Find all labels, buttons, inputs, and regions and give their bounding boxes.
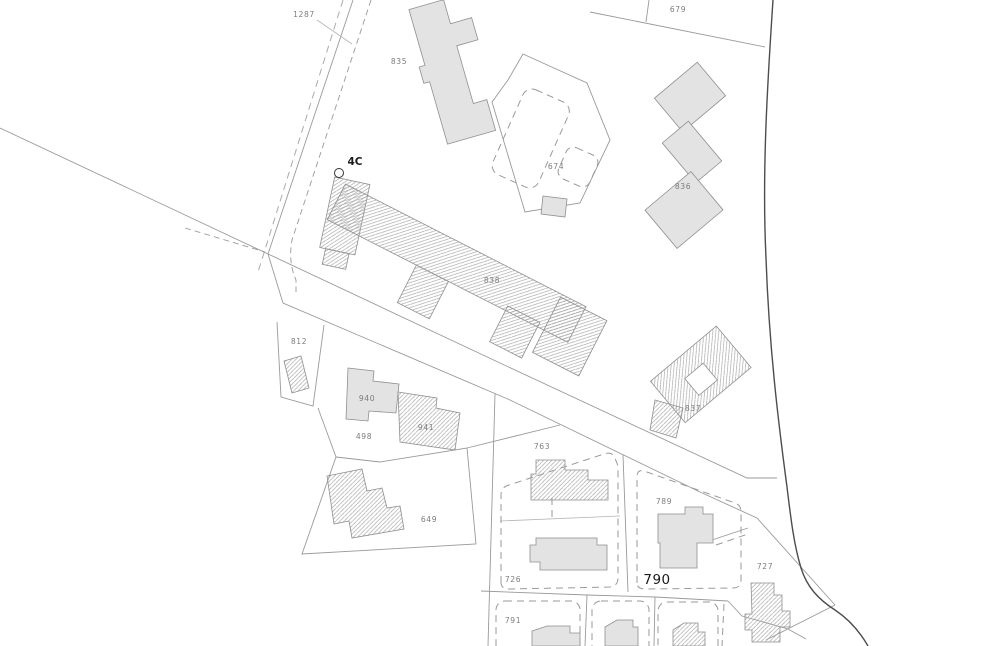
label-address-4c: 4C [347,156,362,168]
dashed-vertical-727 [722,604,724,646]
label-building-837: 837 [685,404,701,413]
building-837 [650,326,751,438]
boundary-bottom-row-top [481,591,728,601]
bottom-row-divider-2 [654,597,655,646]
label-parcel-763: 763 [534,442,550,451]
label-1287-leader-line [317,20,352,44]
building-789 [658,507,713,568]
label-parcel-674: 674 [548,162,564,171]
building-835 [403,0,503,146]
cadastral-map-canvas[interactable]: 1287 835 679 674 836 838 812 940 941 498… [0,0,1005,646]
bottom-row-divider-1 [585,595,587,646]
building-727 [745,583,790,642]
building-726 [530,538,607,570]
label-parcel-791: 791 [505,616,521,625]
label-parcel-498: 498 [356,432,372,441]
building-bottom-right [673,623,705,646]
building-649 [327,469,404,538]
label-parcel-649: 649 [421,515,437,524]
building-bottom-mid [605,620,638,646]
building-674-annex [541,196,567,217]
divider-763-726 [500,516,620,521]
stream-curve-boundary [765,0,868,646]
boundary-679 [590,12,765,47]
building-791-a [532,626,580,646]
building-941 [398,392,460,450]
label-parcel-726: 726 [505,575,521,584]
label-parcel-679: 679 [670,5,686,14]
label-building-838: 838 [484,276,500,285]
label-building-941: 941 [418,423,434,432]
label-parcel-789: 789 [656,497,672,506]
building-763 [531,460,608,500]
boundary-679-stub [646,0,649,22]
boundary-763-790-divider [623,455,628,592]
label-building-836: 836 [675,182,691,191]
label-parcel-727: 727 [757,562,773,571]
parcel-649-outline [302,448,476,554]
address-point-4c-marker [335,169,344,178]
label-building-835: 835 [391,57,407,66]
map-drawing: 1287 835 679 674 836 838 812 940 941 498… [0,0,1005,646]
dashed-stub-left [185,228,265,252]
parcel-674-inner-dashed-large [489,86,573,191]
label-address-790: 790 [643,572,670,588]
lot-727-dashed-edge [716,534,748,545]
label-parcel-1287: 1287 [293,10,315,19]
label-building-940: 940 [359,394,375,403]
building-812 [284,356,309,393]
boundary-west-vertical [488,394,495,646]
label-parcel-812: 812 [291,337,307,346]
building-836 [645,62,726,248]
boundary-727-top [712,528,748,540]
boundary-812-649 [318,408,336,457]
parcel-674-outline [492,54,610,212]
